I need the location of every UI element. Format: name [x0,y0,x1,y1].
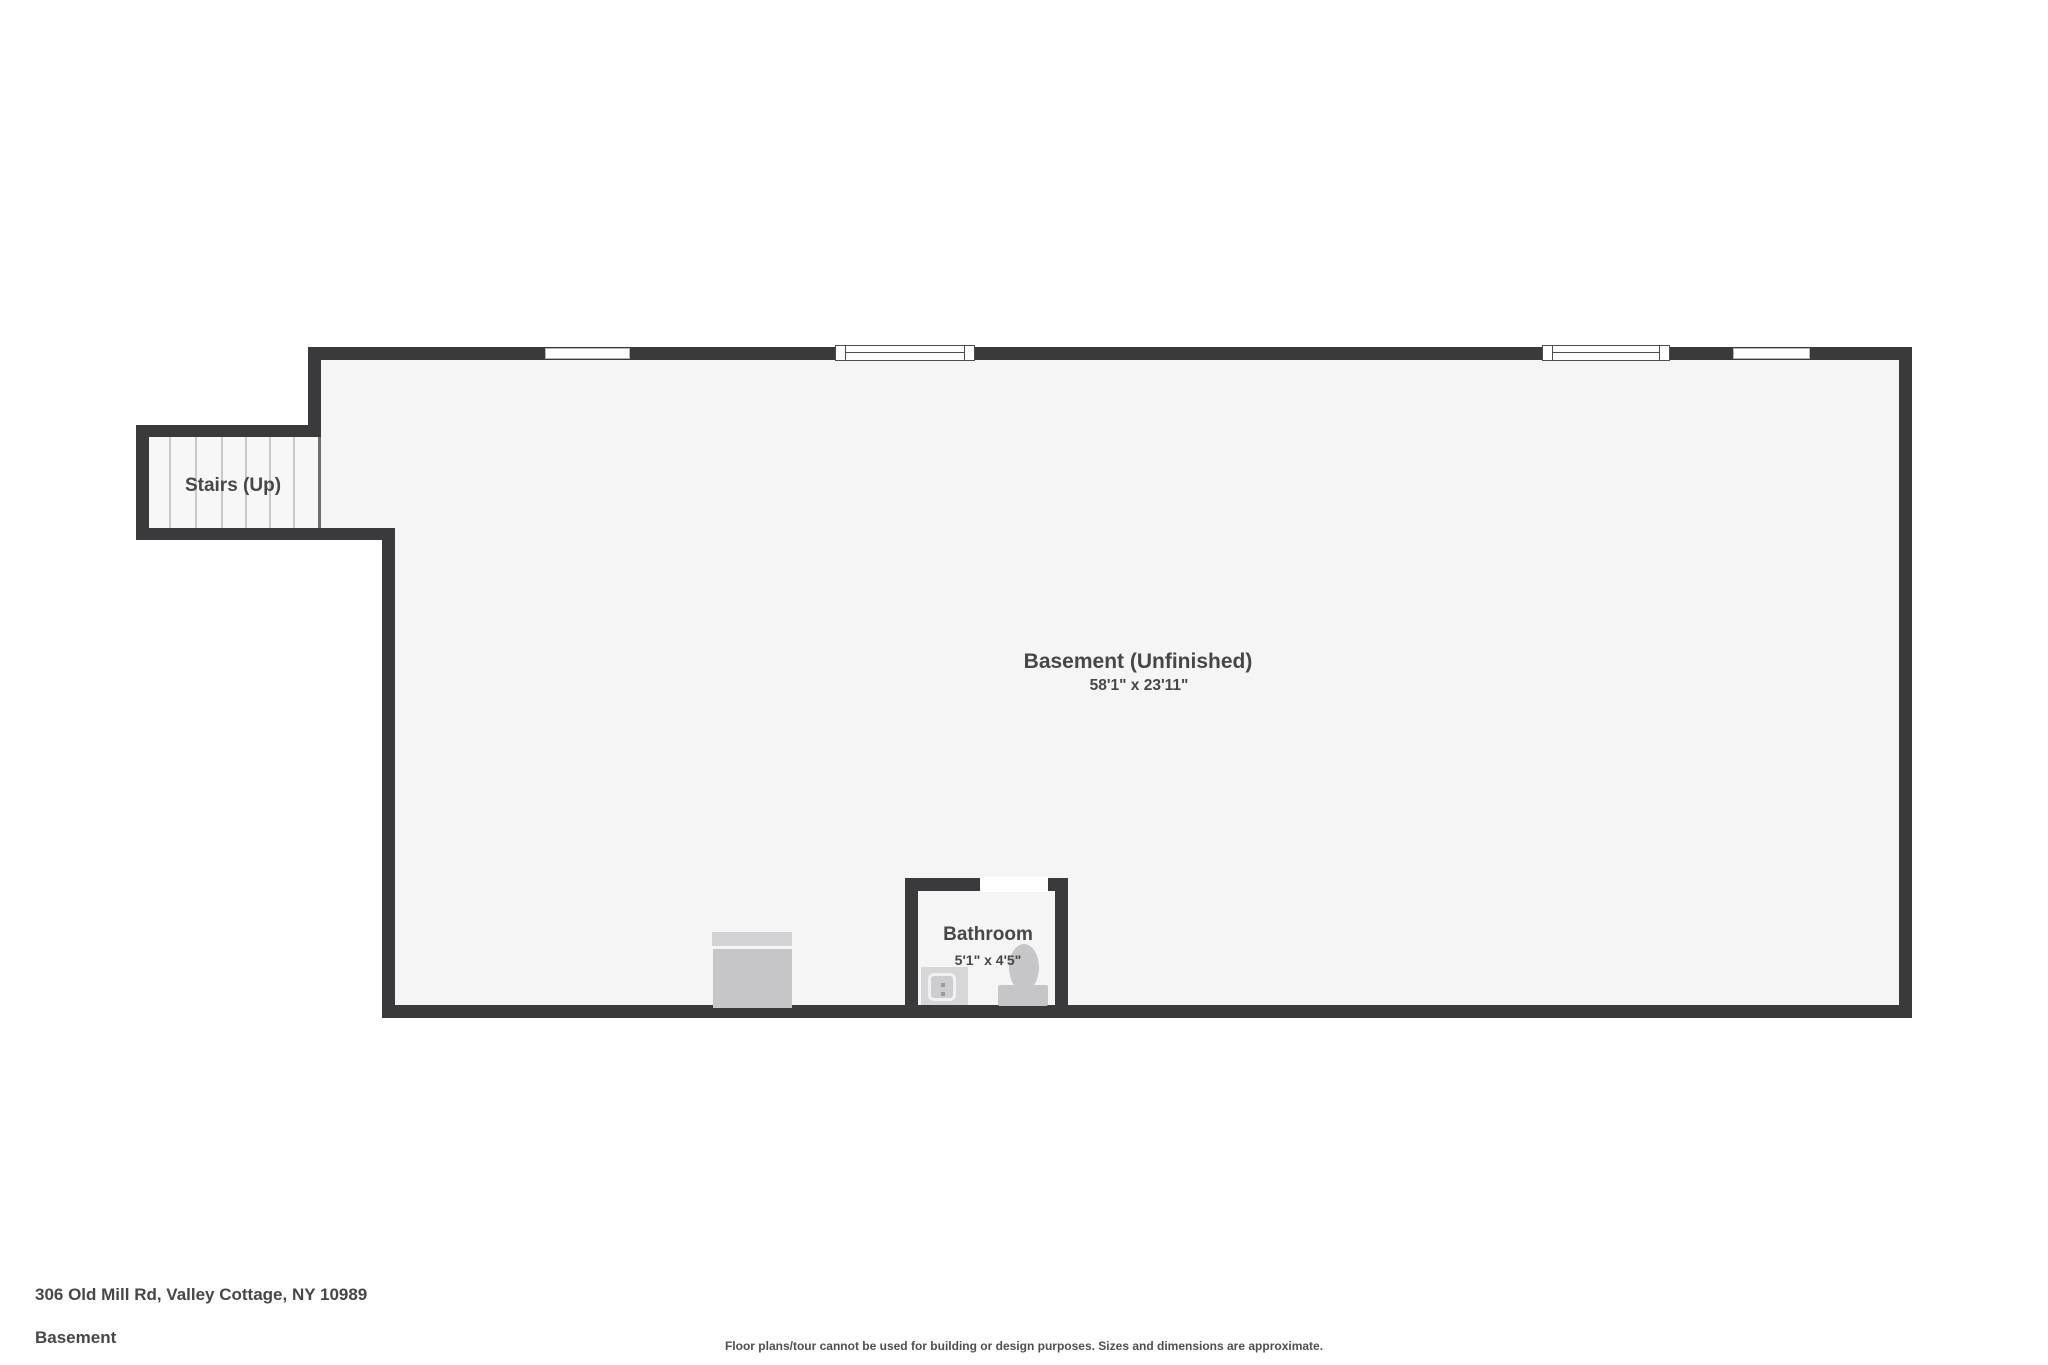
stairs-label: Stairs (Up) [185,475,281,497]
floor-plan-canvas: Stairs (Up) Basement (Unfinished) 58'1" … [0,0,2048,1365]
sink-faucet-dot [941,983,945,987]
window-jamb [1659,346,1660,360]
bathroom-label: Bathroom [943,924,1033,946]
room-dimensions: 58'1" x 23'11" [1090,677,1189,695]
wall-left-upper [308,347,321,437]
wall-opening [1733,348,1810,359]
stairs-open-edge [318,437,321,528]
window-icon [1542,345,1670,361]
footer-address: 306 Old Mill Rd, Valley Cottage, NY 1098… [35,1285,367,1305]
window-glass-line [845,352,965,353]
basement-floor-lower [395,528,1899,1005]
stair-tread [293,437,295,528]
room-label: Basement (Unfinished) [1024,650,1253,674]
bathroom-wall-left [905,878,918,1005]
stairs-wall-top [136,425,321,437]
bathroom-dimensions: 5'1" x 4'5" [955,952,1022,968]
window-jamb [845,346,846,360]
window-jamb [1552,346,1553,360]
sink-drain-dot [941,992,945,996]
stairs-wall-left [136,425,149,540]
wall-left-lower [382,528,395,1018]
washer-body [713,949,792,1008]
sink-icon [921,967,968,1005]
wall-bottom [382,1005,1912,1018]
stair-tread [169,437,171,528]
basement-floor-upper [321,360,1899,528]
toilet-tank [998,985,1048,1006]
footer-disclaimer: Floor plans/tour cannot be used for buil… [0,1339,2048,1353]
bathroom-door-opening [980,877,1048,892]
wall-right [1899,347,1912,1018]
wall-opening [545,348,630,359]
bathroom-wall-right [1055,878,1068,1005]
window-icon [835,345,975,361]
washer-icon [712,932,792,1008]
sink-basin [928,973,956,1001]
window-glass-line [1552,352,1660,353]
window-jamb [964,346,965,360]
washer-control-panel [712,932,792,946]
stairs-wall-bottom [136,528,395,540]
